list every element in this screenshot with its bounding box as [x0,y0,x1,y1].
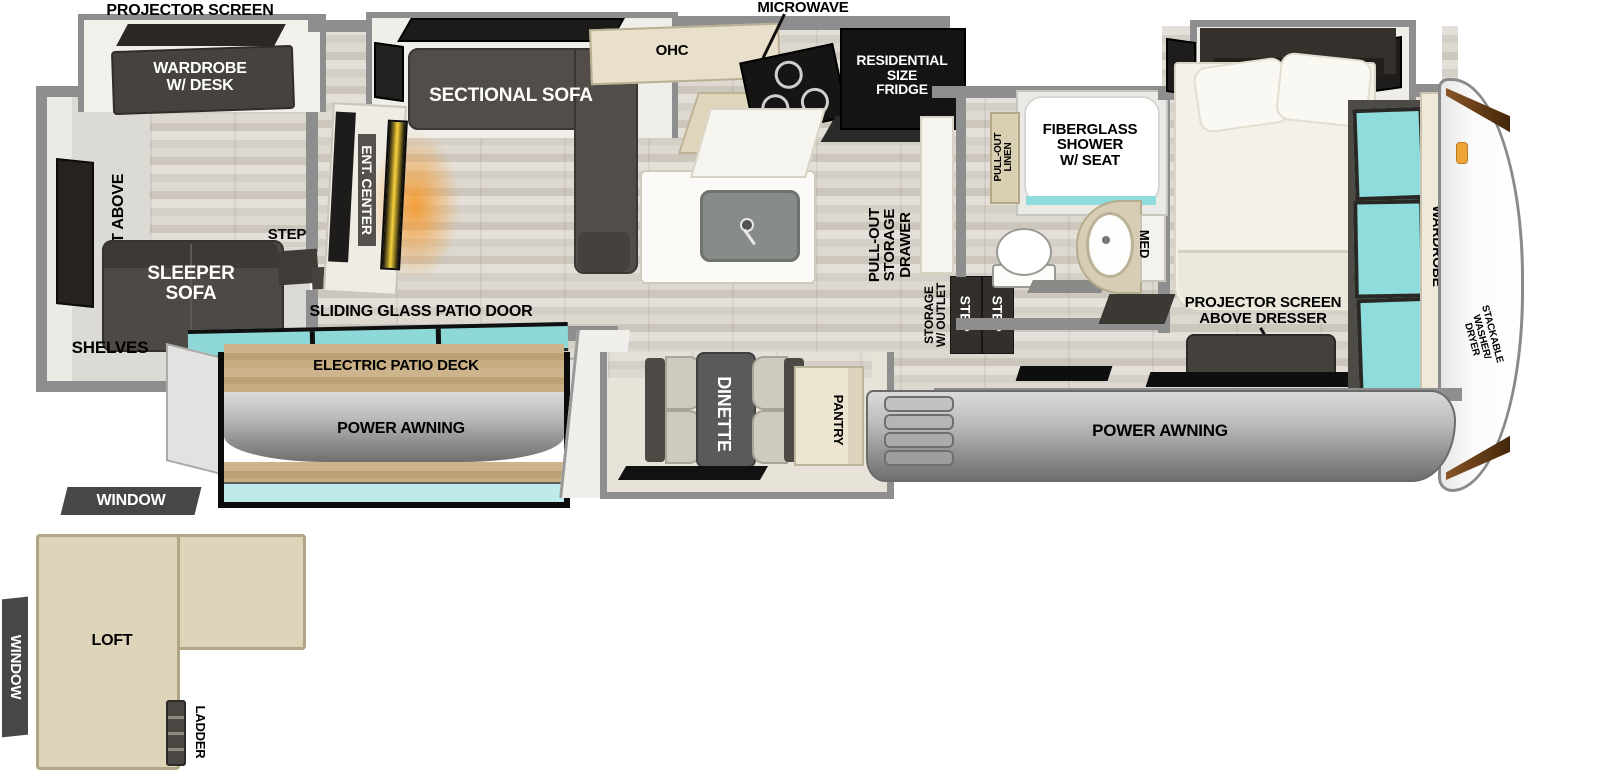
med-label: MED [1136,219,1152,269]
island-upper-counter [690,108,826,178]
wardrobe-desk-label: WARDROBE W/ DESK [116,56,284,100]
dinette-seats-right2 [752,410,788,464]
burner-icon [772,58,805,91]
tall-cabinet [920,116,954,274]
storage-outlet-label: STORAGE W/ OUTLET [921,271,949,359]
patio-power-awning-label: POWER AWNING [318,419,484,439]
projector-screen-strip [1146,372,1361,387]
shelves-label: SHELVES [48,337,172,359]
dinette-window [618,466,768,480]
rear-room-wall-left [36,86,47,392]
patio-rail-bottom [218,502,570,508]
rear-room-wood-patch [150,97,308,247]
loft-window-side-label: WINDOW [6,603,24,731]
ohc-label: OHC [644,42,700,60]
bath-faucet-icon [1102,236,1110,244]
bath-wall-left [956,95,966,277]
patio-rail-left [218,352,224,508]
right-awning-label: POWER AWNING [1058,420,1262,442]
wardrobe-desk-top-window [116,24,286,46]
loft-shape-patch-v [158,539,176,639]
sectional-sofa-chaise [578,232,630,272]
electric-patio-deck-label: ELECTRIC PATIO DECK [298,357,494,375]
front-cap-handle-icon [1456,142,1468,164]
top-wall-left-seg [308,20,372,32]
entry-step-bar [884,432,954,448]
entry-step-bar [884,396,954,412]
ladder-rung [168,748,184,751]
entry-step-label-2: STEP [990,286,1005,342]
ladder-label: LADDER [192,697,208,767]
bottom-wall-window-strip [1016,366,1113,381]
dinette-chair-back-left [645,358,665,462]
microwave-label: MICROWAVE [730,0,876,16]
ent-center-label: ENT. CENTER [358,134,376,246]
bedroom-window-2 [1353,199,1425,298]
shower-label: FIBERGLASS SHOWER W/ SEAT [1028,116,1152,174]
entry-steps [880,394,956,470]
ladder-rung [168,732,184,735]
pullout-storage-drawer-label: PULL-OUT STORAGE DRAWER [864,189,916,301]
sliding-door-label: SLIDING GLASS PATIO DOOR [288,302,554,322]
exterior-mask-above-bath [948,12,1162,88]
sectional-sofa-label: SECTIONAL SOFA [426,84,596,108]
entry-step-bar [884,414,954,430]
patio-glass-rail [224,482,564,504]
dinette-seats-right [752,356,788,410]
bedroom-entry-step [1099,294,1176,324]
toilet-bowl [996,228,1052,276]
ladder-icon [166,700,186,766]
pantry-label: PANTRY [830,389,846,451]
rear-step-label: STEP [258,226,316,244]
sleeper-sofa-label: SLEEPER SOFA [118,262,264,306]
bedroom-window-3 [1356,297,1429,397]
loft-label: LOFT [82,630,142,652]
floorplan: WARDROBE W/ DESK PROJECTOR SCREEN LOFT A… [0,0,1600,783]
patio-deck-lower [224,462,564,482]
entry-step-label-1: STEP [958,286,973,342]
loft-window-top-label: WINDOW [64,489,198,513]
bath-sink [1086,212,1134,278]
dinette-label: DINETTE [713,358,735,470]
projector-dresser-label: PROJECTOR SCREEN ABOVE DRESSER [1172,292,1354,330]
patio-support-left [166,343,222,475]
linen-label: PULL-OUT LINEN [992,120,1016,194]
bedroom-window-1 [1352,107,1425,201]
sofa-slide-side-window [374,42,404,102]
ladder-rung [168,716,184,719]
entry-step-bar [884,450,954,466]
rear-tv [56,158,94,308]
pantry-cabinet [794,366,864,466]
rear-room-wall-bottom [36,381,186,392]
rear-projector-screen-label: PROJECTOR SCREEN [92,2,288,20]
